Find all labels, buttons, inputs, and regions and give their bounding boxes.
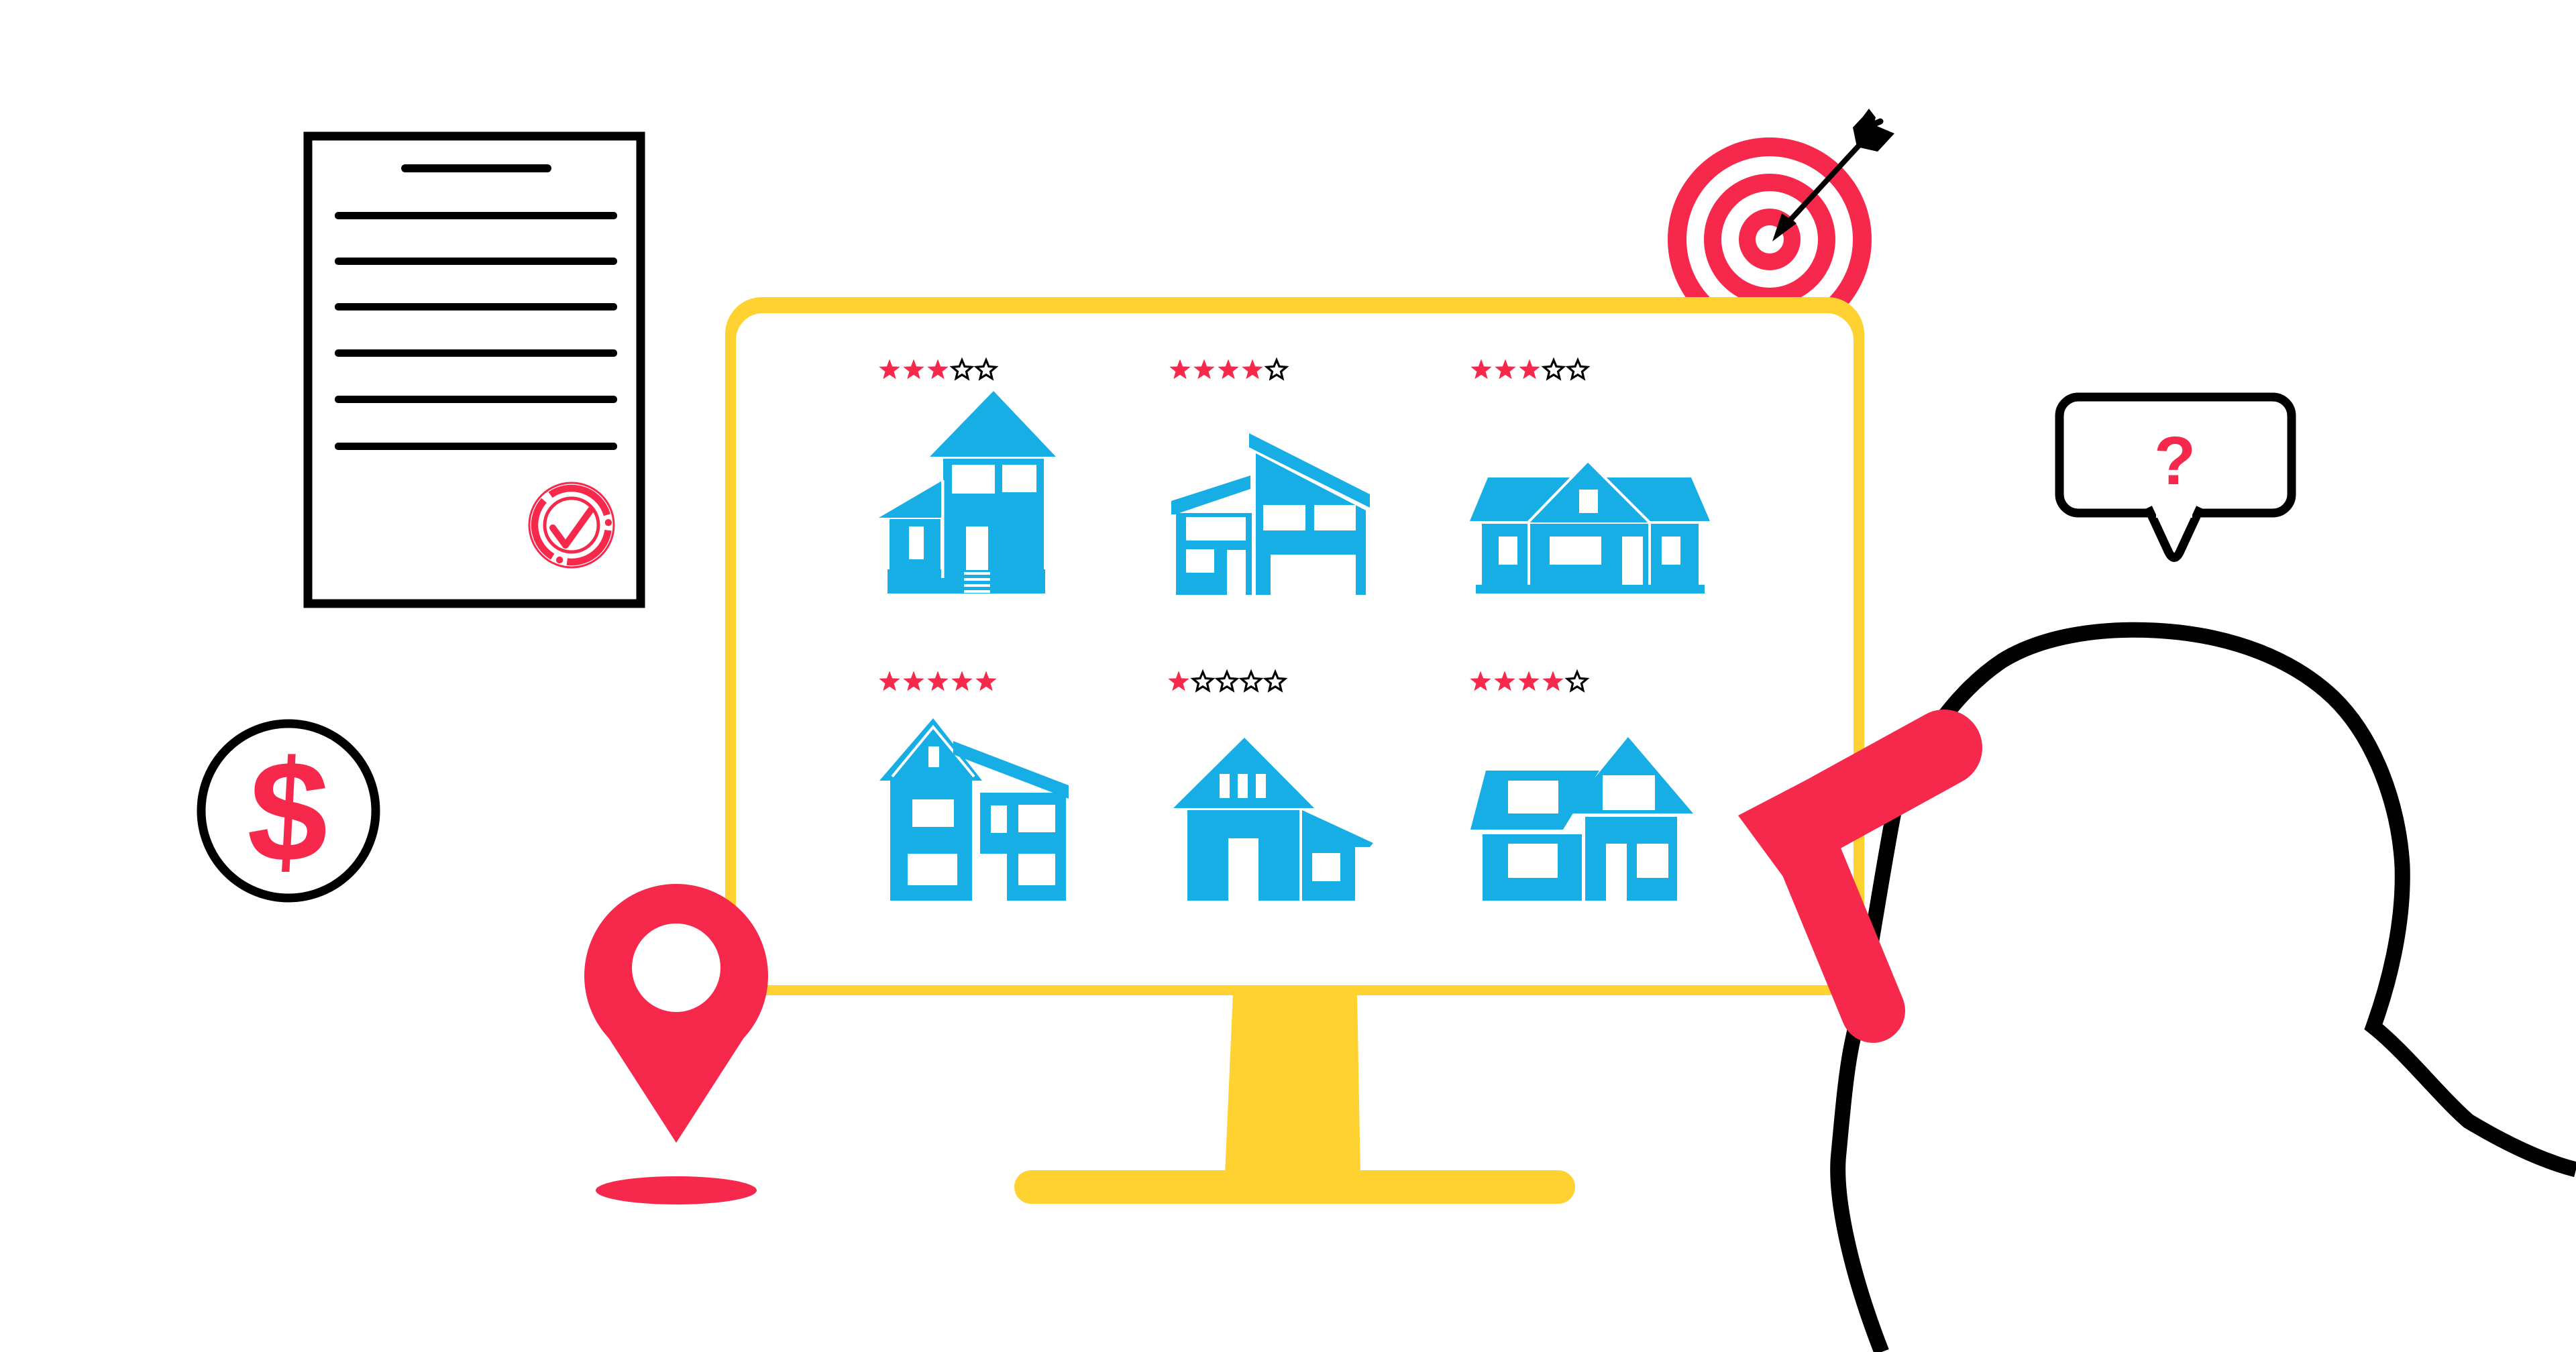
svg-text:$: $ xyxy=(244,730,333,892)
svg-text:?: ? xyxy=(2154,422,2196,499)
